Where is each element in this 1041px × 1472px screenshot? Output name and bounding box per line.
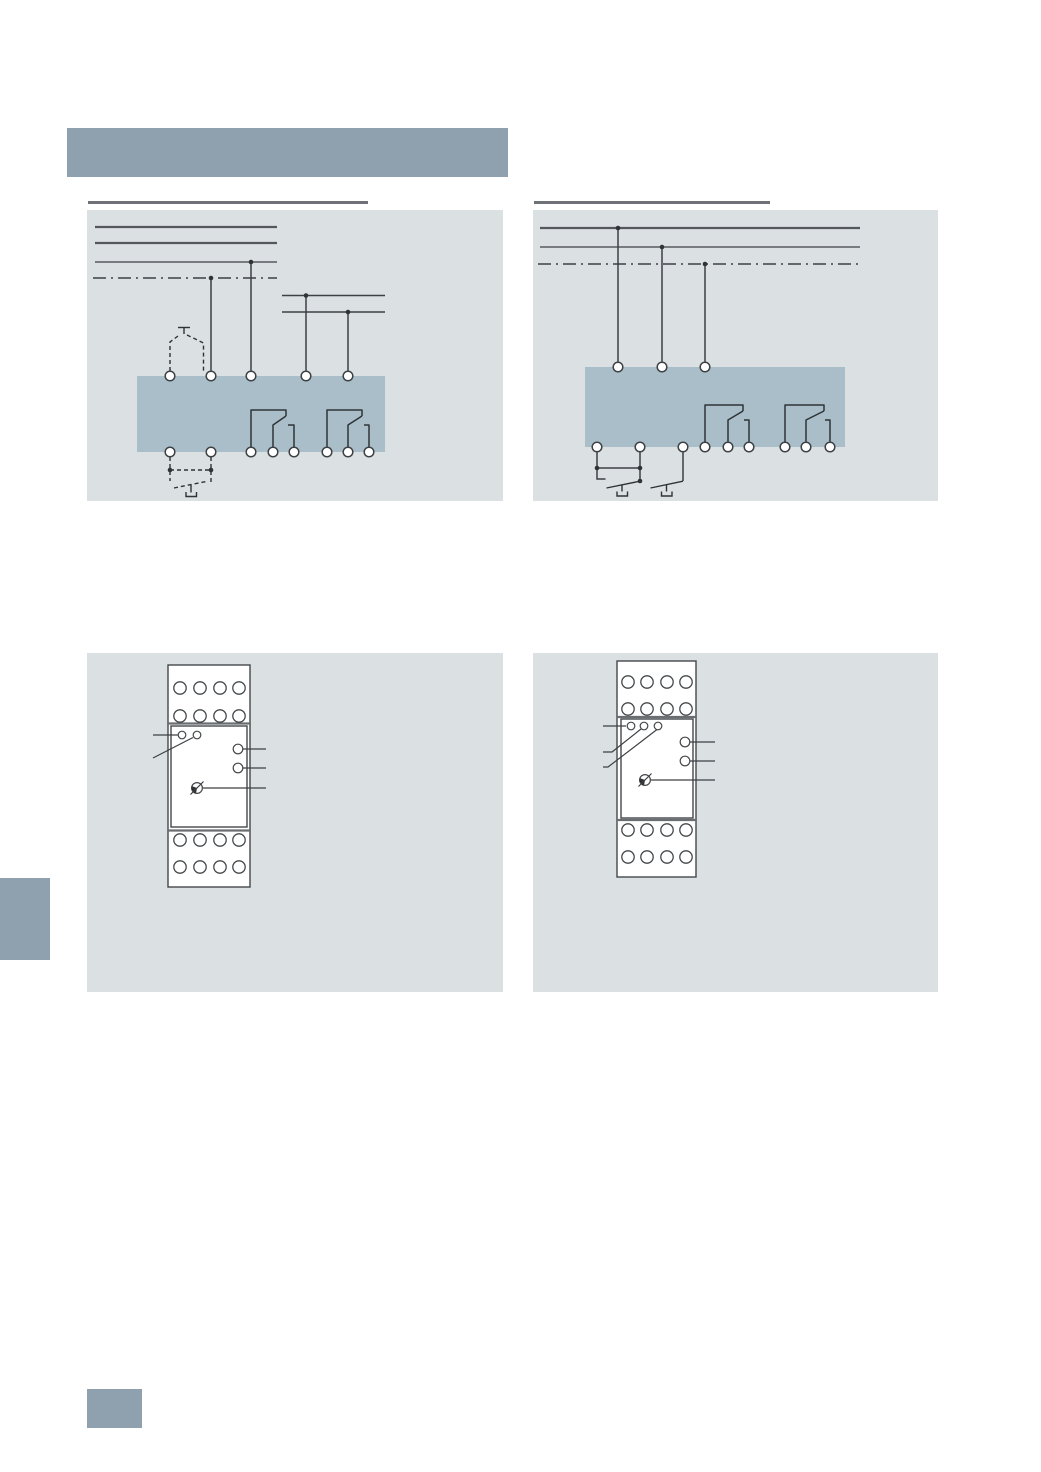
figure-panel-front-right xyxy=(533,653,938,992)
pushbutton-wiring xyxy=(595,452,683,496)
figure-panel-front-left xyxy=(87,653,503,992)
wiring-diagram-left xyxy=(87,210,503,501)
wiring-diagram-right xyxy=(533,210,938,501)
supply-rails xyxy=(93,227,277,278)
pushbutton-bottom xyxy=(168,457,214,497)
section-tab xyxy=(0,878,50,960)
device-front-view-right xyxy=(533,653,938,992)
front-face xyxy=(171,726,247,827)
pushbutton-top xyxy=(170,328,204,372)
supply-drop-wires xyxy=(616,226,708,362)
supply-drop-wires xyxy=(209,260,351,371)
front-face xyxy=(621,719,693,818)
aux-rails xyxy=(282,296,385,313)
supply-rails xyxy=(538,228,862,264)
figure-caption-rule-right xyxy=(534,201,770,204)
led-indicators xyxy=(627,722,662,730)
figure-panel-wiring-right xyxy=(533,210,938,501)
page-number-block xyxy=(87,1389,142,1428)
document-page xyxy=(0,0,1041,1472)
figure-caption-rule-left xyxy=(88,201,368,204)
section-header-bar xyxy=(67,128,508,177)
device-front-view-left xyxy=(87,653,503,992)
figure-panel-wiring-left xyxy=(87,210,503,501)
